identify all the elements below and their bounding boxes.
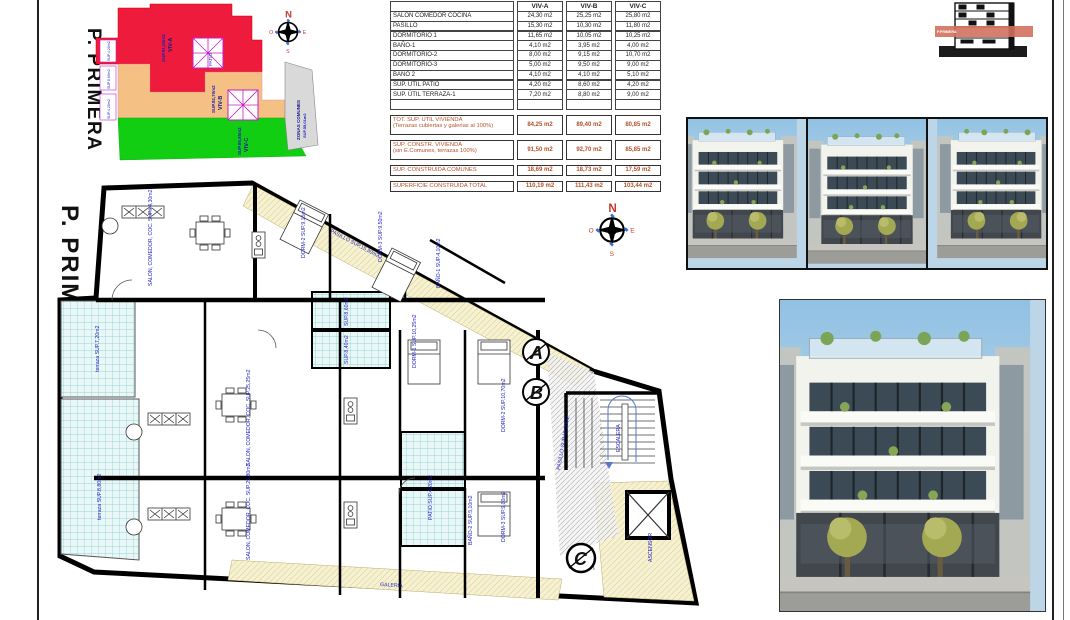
sheet-border-right-outer xyxy=(1063,0,1064,620)
empty-row xyxy=(390,99,514,110)
room-label: SUP.8,60m2 xyxy=(344,297,350,326)
svg-text:O: O xyxy=(269,30,273,36)
zone-area-viv-c: SUP.85,85m2 xyxy=(237,127,242,155)
highlight-band-label: P.PRIMERA xyxy=(937,30,957,34)
summary-value: 80,85 m2 xyxy=(615,115,661,135)
room-label: DORM-3 SUP.9,50m2 xyxy=(378,211,384,262)
section-marker-b: B xyxy=(523,379,549,405)
summary-value: 91,50 m2 xyxy=(517,140,563,160)
zone-viv-c xyxy=(118,118,306,160)
svg-text:B: B xyxy=(530,383,543,403)
room-label: GALERIA xyxy=(380,582,403,589)
floor-plan: P. PRIMERA xyxy=(36,173,706,620)
svg-text:N: N xyxy=(608,202,616,215)
zone-area-comunes: SUP.55,01m2 xyxy=(302,113,307,138)
summary-value: 85,85 m2 xyxy=(615,140,661,160)
summary-value: 89,40 m2 xyxy=(566,115,612,135)
svg-text:E: E xyxy=(303,30,307,36)
drawing-sheet: { "sheet": { "floor_title": "P. PRIMERA"… xyxy=(0,0,1070,620)
site-edge-label: SUP.4,20m2 xyxy=(107,41,111,61)
room-label: SALON, COMEDOR, COC. SUP.25,80m2 xyxy=(246,463,252,560)
room-label: terraza SUP.7,20m2 xyxy=(95,326,101,372)
section-marker-a: A xyxy=(523,339,549,365)
room-label: PATIO SUP.4,20m2 xyxy=(428,475,434,520)
svg-text:E: E xyxy=(630,228,635,235)
zone-label-viv-b: VIV-B xyxy=(218,96,224,110)
room-label: SALON, COMEDOR, COC. SUP.25,25m2 xyxy=(246,369,252,466)
site-patio-label: PATIO xyxy=(208,53,213,66)
svg-text:O: O xyxy=(589,228,594,235)
compass-icon: N S E O xyxy=(589,202,636,258)
site-patio-2 xyxy=(228,90,258,120)
room-label: BAÑO-2 SUP.5,10m2 xyxy=(467,495,474,545)
summary-value: 92,70 m2 xyxy=(566,140,612,160)
room-label: ASCENSOR xyxy=(648,533,654,562)
main-render xyxy=(779,299,1046,612)
zone-label-comunes: ZONAS COMUNES xyxy=(296,100,301,140)
render-view-right xyxy=(928,119,1046,268)
svg-text:A: A xyxy=(529,343,543,363)
summary-value: 84,25 m2 xyxy=(517,115,563,135)
site-edge-label: SUP.8,60m2 xyxy=(107,69,111,89)
elevator xyxy=(627,492,669,538)
room-label: SUP.8,40m2 xyxy=(344,335,350,364)
room-label: DORM-3 SUP.9,00m2 xyxy=(501,491,507,542)
summary-sublabel: (Terrazas cubiertas y galerias al 100%) xyxy=(393,123,493,129)
areas-table-main: VIV-A VIV-B VIV-C SALON COMEDOR COCINA 2… xyxy=(390,2,662,110)
building-section-thumbnail: P.PRIMERA xyxy=(925,0,1047,64)
summary-sublabel: (sin E.Comunes, terrazas 100%) xyxy=(393,148,477,154)
room-label: DORM-1 SUP.10,25m2 xyxy=(412,314,418,368)
section-marker-c: C xyxy=(567,544,595,572)
summary-label: TOT. SUP. UTIL VIVIENDA xyxy=(393,117,462,123)
zone-area-viv-a: SUP.91,50m2 xyxy=(161,34,166,62)
room-label: ESCALERA xyxy=(616,424,622,452)
zone-label-viv-c: VIV-C xyxy=(244,138,250,152)
zone-label-viv-a: VIV-A xyxy=(168,38,174,52)
summary-row: SUP. CONSTR. VIVIENDA (sin E.Comunes, te… xyxy=(390,140,662,160)
room-label: BAÑO-1 SUP.4,10m2 xyxy=(435,238,442,288)
render-view-center xyxy=(808,119,926,268)
svg-text:S: S xyxy=(610,251,615,258)
svg-text:S: S xyxy=(286,49,290,55)
room-label: DORM-2 SUP.9,15m2 xyxy=(301,207,307,258)
room-label: DORM-2 SUP.10,70m2 xyxy=(501,378,507,432)
svg-text:C: C xyxy=(574,549,588,569)
compass-icon: N S E O xyxy=(269,9,307,55)
areas-table: VIV-A VIV-B VIV-C SALON COMEDOR COCINA 2… xyxy=(390,2,662,192)
svg-text:N: N xyxy=(285,9,292,20)
sheet-border-right xyxy=(1052,0,1054,620)
renders-panel xyxy=(686,117,1048,270)
zone-area-viv-b: SUP.92,70m2 xyxy=(211,85,216,113)
room-label: SALON, COMEDOR, COC. SUP.24,30m2 xyxy=(148,189,154,286)
room-label: terraza SUP.8,80m2 xyxy=(97,474,103,520)
summary-row: TOT. SUP. UTIL VIVIENDA (Terrazas cubier… xyxy=(390,115,662,135)
site-plan: P. PRIMERA PATIO SUP.4,20m2 SUP.8,60m2 S… xyxy=(36,0,336,172)
site-edge-label: SUP.4,20m2 xyxy=(107,99,111,119)
summary-label: SUP. CONSTR. VIVIENDA xyxy=(393,142,462,148)
